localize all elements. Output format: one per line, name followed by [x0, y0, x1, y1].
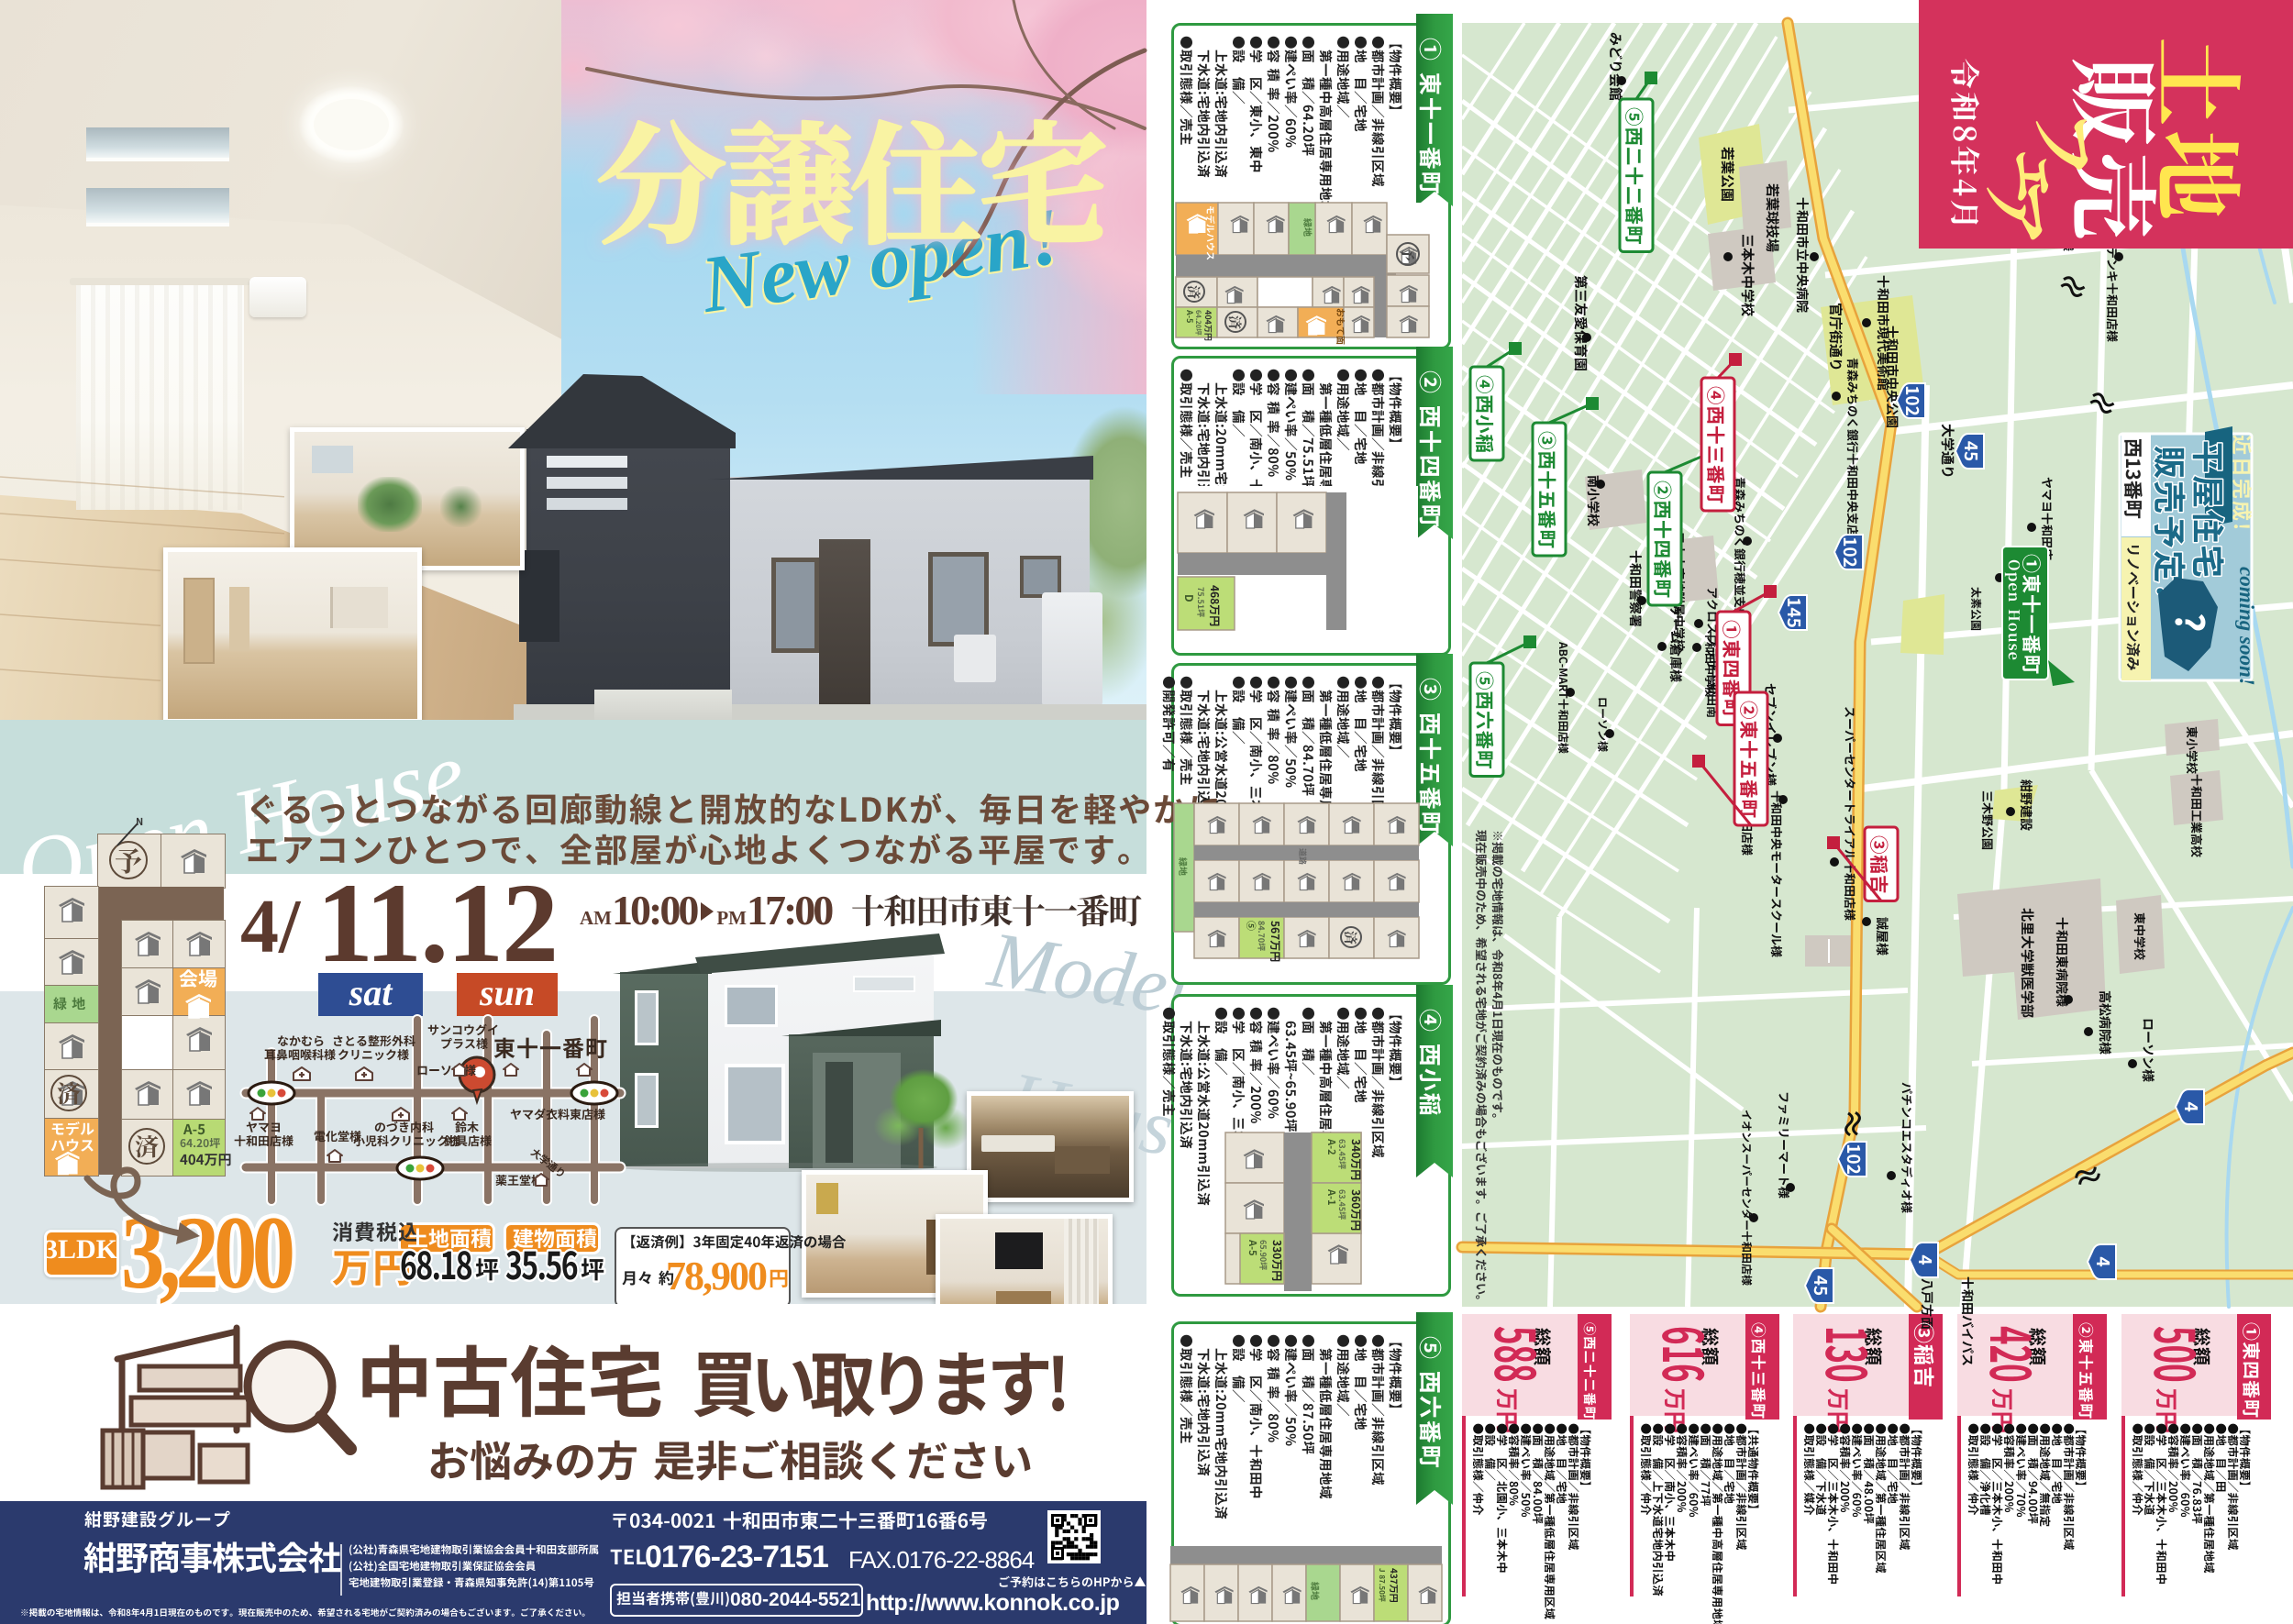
svg-text:coming soon!: coming soon!	[2235, 567, 2258, 686]
